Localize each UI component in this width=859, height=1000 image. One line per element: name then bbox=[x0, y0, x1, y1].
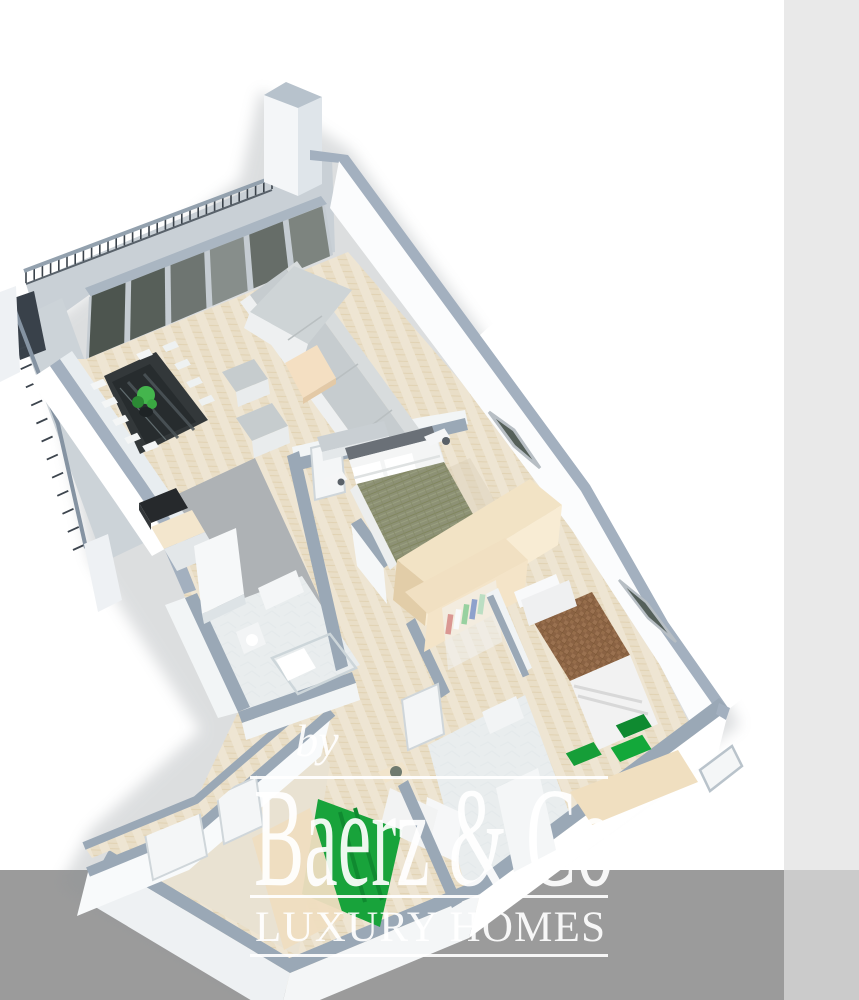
svg-text:Baerz & Co: Baerz & Co bbox=[254, 758, 614, 916]
